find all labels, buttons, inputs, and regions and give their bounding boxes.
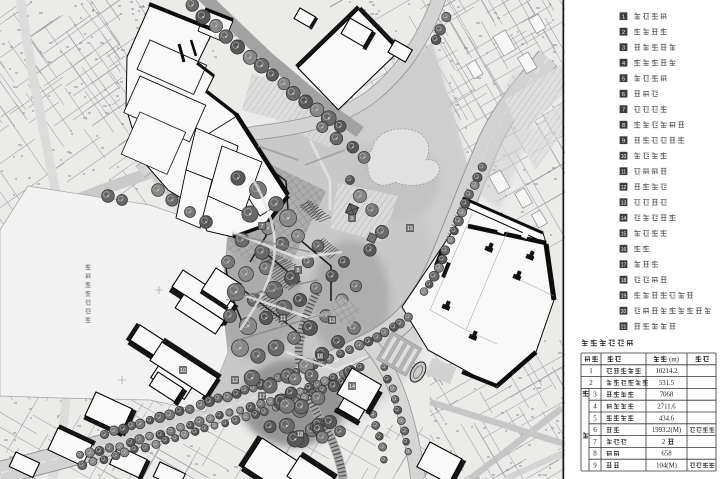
svg-text:20: 20	[621, 309, 627, 315]
svg-text:4: 4	[593, 403, 597, 411]
svg-text:16: 16	[621, 247, 627, 253]
svg-text:14: 14	[621, 216, 627, 222]
svg-text:2: 2	[589, 379, 593, 387]
svg-text:531.5: 531.5	[659, 380, 675, 387]
svg-text:7068: 7068	[660, 392, 674, 399]
svg-text:13: 13	[621, 200, 627, 206]
svg-text:2: 2	[622, 30, 625, 36]
svg-text:19: 19	[621, 293, 627, 299]
svg-text:1: 1	[589, 367, 593, 375]
svg-text:(m): (m)	[669, 356, 679, 363]
svg-text:5: 5	[622, 76, 625, 82]
svg-text:8: 8	[622, 123, 625, 129]
svg-text:8: 8	[593, 450, 597, 458]
svg-text:104(M): 104(M)	[656, 463, 677, 470]
svg-text:3: 3	[593, 391, 597, 399]
svg-text:3: 3	[622, 45, 625, 51]
svg-text:9: 9	[622, 138, 625, 144]
svg-text:15: 15	[621, 231, 627, 237]
svg-text:7: 7	[622, 107, 625, 113]
svg-text:658: 658	[661, 451, 672, 458]
svg-text:6: 6	[622, 92, 625, 98]
svg-text:7: 7	[593, 438, 597, 446]
svg-text:10214.2: 10214.2	[655, 368, 678, 375]
svg-text:18: 18	[621, 278, 627, 284]
svg-text:11: 11	[621, 169, 626, 175]
svg-text:17: 17	[621, 262, 627, 268]
svg-text:12: 12	[621, 185, 627, 191]
svg-text:10: 10	[621, 154, 627, 160]
svg-text:21: 21	[621, 324, 627, 330]
svg-text:2: 2	[662, 438, 666, 446]
svg-text:2711.6: 2711.6	[657, 404, 676, 411]
svg-text:1993.2(M): 1993.2(M)	[652, 427, 681, 434]
svg-text:6: 6	[593, 426, 597, 434]
svg-text:5: 5	[593, 414, 597, 422]
svg-text:434.6: 434.6	[659, 415, 675, 422]
svg-text:9: 9	[593, 462, 597, 470]
svg-text:4: 4	[622, 61, 625, 67]
svg-text:1: 1	[622, 14, 625, 20]
